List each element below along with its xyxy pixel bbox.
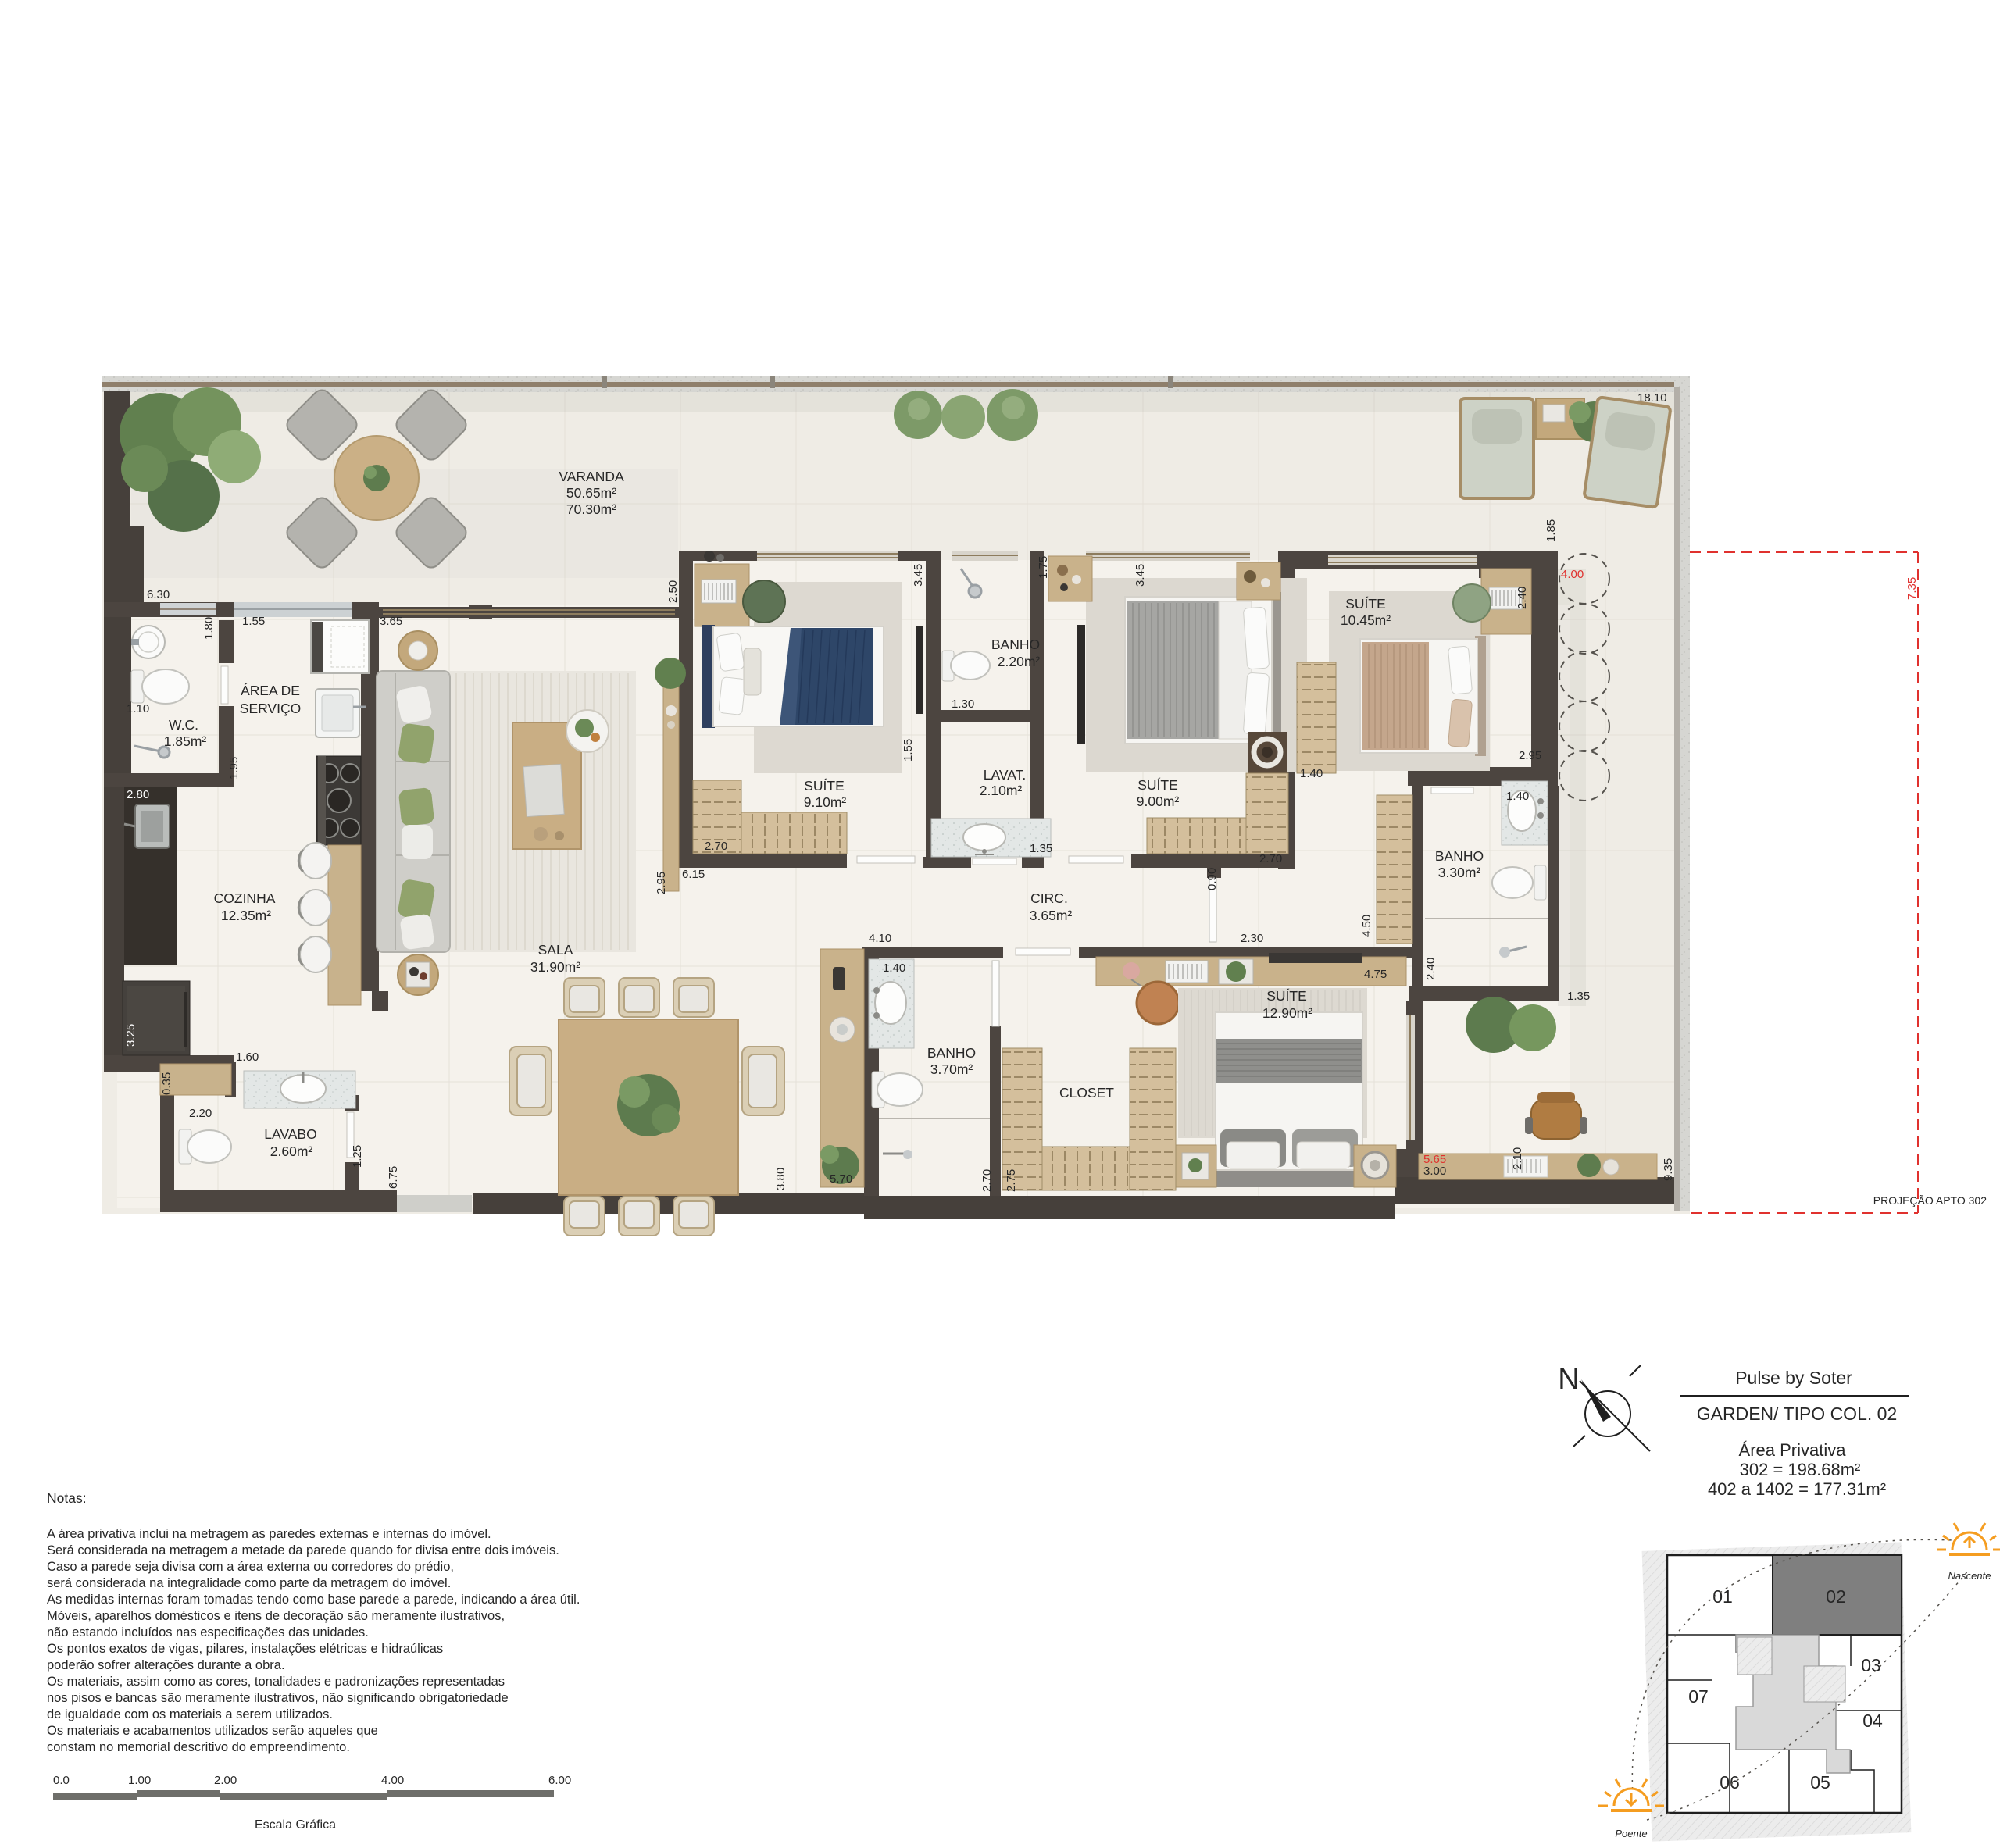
svg-text:4.00: 4.00: [381, 1774, 404, 1787]
svg-text:GARDEN/ TIPO COL. 02: GARDEN/ TIPO COL. 02: [1697, 1404, 1897, 1424]
svg-text:03: 03: [1861, 1655, 1881, 1675]
svg-text:2.80: 2.80: [127, 788, 149, 801]
svg-text:07: 07: [1688, 1686, 1709, 1707]
svg-text:0.90: 0.90: [1205, 868, 1219, 890]
svg-text:PROJEÇÃO APTO 302: PROJEÇÃO APTO 302: [1873, 1194, 1987, 1207]
svg-text:70.30m²: 70.30m²: [566, 501, 616, 517]
svg-text:2.40: 2.40: [1424, 958, 1437, 980]
svg-text:2.00: 2.00: [214, 1774, 237, 1787]
svg-text:LAVAT.: LAVAT.: [984, 767, 1026, 783]
svg-text:02: 02: [1826, 1586, 1846, 1607]
svg-text:3.45: 3.45: [912, 564, 925, 587]
svg-text:Móveis, aparelhos domésticos e: Móveis, aparelhos domésticos e itens de …: [47, 1609, 505, 1623]
svg-text:6.00: 6.00: [548, 1774, 571, 1787]
svg-text:5.65: 5.65: [1423, 1153, 1446, 1166]
svg-text:3.65: 3.65: [380, 615, 402, 628]
svg-text:de igualdade com os materiais: de igualdade com os materiais a serem ut…: [47, 1707, 333, 1721]
svg-text:Os pontos exatos de vigas, pil: Os pontos exatos de vigas, pilares, inst…: [47, 1642, 443, 1656]
svg-text:N: N: [1558, 1363, 1579, 1396]
svg-text:CLOSET: CLOSET: [1059, 1085, 1114, 1101]
svg-text:Os materiais, assim como as co: Os materiais, assim como as cores, tonal…: [47, 1675, 505, 1689]
svg-text:As medidas internas foram toma: As medidas internas foram tomadas tendo …: [47, 1593, 580, 1607]
svg-text:0.35: 0.35: [160, 1072, 173, 1095]
svg-text:nos pisos e bancas são meramen: nos pisos e bancas são meramente ilustra…: [47, 1691, 509, 1705]
svg-text:Notas:: Notas:: [47, 1490, 87, 1506]
svg-text:5.70: 5.70: [830, 1172, 852, 1186]
svg-text:1.25: 1.25: [351, 1145, 364, 1168]
svg-text:31.90m²: 31.90m²: [530, 959, 580, 975]
svg-text:COZINHA: COZINHA: [214, 890, 276, 906]
svg-text:1.75: 1.75: [1037, 556, 1050, 579]
svg-text:BANHO: BANHO: [991, 637, 1040, 652]
svg-text:1.85m²: 1.85m²: [164, 733, 207, 749]
svg-text:6.15: 6.15: [682, 868, 705, 881]
svg-text:Poente: Poente: [1615, 1828, 1647, 1839]
svg-text:2.70: 2.70: [1259, 852, 1282, 865]
svg-text:1.40: 1.40: [1506, 790, 1529, 803]
svg-text:50.65m²: 50.65m²: [566, 485, 616, 501]
svg-text:SERVIÇO: SERVIÇO: [240, 701, 301, 716]
svg-text:será considerada na integralid: será considerada na integralidade como p…: [47, 1576, 451, 1590]
svg-text:6.30: 6.30: [147, 588, 170, 601]
svg-text:2.95: 2.95: [655, 872, 668, 894]
svg-text:1.95: 1.95: [227, 757, 241, 780]
svg-text:9.35: 9.35: [1662, 1158, 1675, 1181]
svg-text:SUÍTE: SUÍTE: [804, 778, 845, 794]
svg-text:Será considerada na metragem a: Será considerada na metragem a metade da…: [47, 1543, 559, 1557]
svg-text:04: 04: [1862, 1711, 1883, 1731]
svg-text:9.10m²: 9.10m²: [804, 794, 847, 810]
svg-text:Nascente: Nascente: [1948, 1570, 1991, 1582]
svg-text:3.80: 3.80: [774, 1168, 787, 1190]
svg-text:3.65m²: 3.65m²: [1030, 908, 1073, 923]
svg-text:BANHO: BANHO: [1435, 848, 1484, 864]
svg-text:2.60m²: 2.60m²: [270, 1143, 313, 1159]
svg-text:2.95: 2.95: [1519, 749, 1541, 762]
svg-text:1.30: 1.30: [952, 697, 974, 711]
svg-text:05: 05: [1810, 1772, 1830, 1793]
svg-text:2.20: 2.20: [189, 1107, 212, 1120]
svg-text:CIRC.: CIRC.: [1030, 890, 1068, 906]
svg-text:12.35m²: 12.35m²: [221, 908, 271, 923]
svg-text:2.70: 2.70: [980, 1169, 994, 1192]
svg-text:6.75: 6.75: [387, 1166, 400, 1189]
svg-text:1.40: 1.40: [1300, 767, 1323, 780]
svg-text:2.10: 2.10: [1511, 1147, 1524, 1170]
svg-text:4.10: 4.10: [869, 932, 891, 945]
svg-text:1.55: 1.55: [902, 739, 915, 762]
svg-text:1.00: 1.00: [128, 1774, 151, 1787]
svg-text:2.75: 2.75: [1005, 1169, 1018, 1192]
svg-text:SALA: SALA: [538, 942, 573, 958]
svg-text:9.00m²: 9.00m²: [1137, 794, 1180, 809]
svg-text:1.60: 1.60: [236, 1051, 259, 1064]
svg-text:0.0: 0.0: [53, 1774, 70, 1787]
svg-text:4.50: 4.50: [1360, 915, 1373, 937]
svg-text:poderão sofrer alterações dura: poderão sofrer alterações durante a obra…: [47, 1658, 285, 1672]
svg-text:2.10m²: 2.10m²: [980, 783, 1023, 798]
svg-text:2.50: 2.50: [666, 580, 680, 603]
svg-text:1.10: 1.10: [127, 702, 149, 715]
svg-text:A área privativa inclui na met: A área privativa inclui na metragem as p…: [47, 1527, 491, 1541]
svg-text:2.70: 2.70: [705, 840, 727, 853]
svg-text:302 = 198.68m²: 302 = 198.68m²: [1740, 1460, 1861, 1479]
svg-text:1.40: 1.40: [883, 961, 905, 975]
svg-text:SUÍTE: SUÍTE: [1137, 777, 1178, 793]
svg-text:ÁREA DE: ÁREA DE: [241, 683, 300, 698]
svg-text:constam no memorial descritivo: constam no memorial descritivo do empree…: [47, 1740, 350, 1754]
svg-text:VARANDA: VARANDA: [559, 469, 624, 484]
svg-text:1.55: 1.55: [242, 615, 265, 628]
svg-text:W.C.: W.C.: [169, 717, 198, 733]
svg-text:Área Privativa: Área Privativa: [1739, 1440, 1847, 1460]
svg-text:1.35: 1.35: [1567, 990, 1590, 1003]
svg-text:4.00: 4.00: [1561, 568, 1584, 581]
svg-text:3.70m²: 3.70m²: [930, 1061, 973, 1077]
svg-text:402 a 1402 = 177.31m²: 402 a 1402 = 177.31m²: [1708, 1479, 1886, 1499]
svg-text:SUÍTE: SUÍTE: [1266, 988, 1307, 1004]
svg-text:06: 06: [1720, 1772, 1740, 1793]
svg-text:3.00: 3.00: [1423, 1165, 1446, 1178]
svg-text:Caso a parede seja divisa com: Caso a parede seja divisa com a área ext…: [47, 1560, 454, 1574]
svg-text:Os materiais e acabamentos uti: Os materiais e acabamentos utilizados se…: [47, 1724, 378, 1738]
svg-text:Escala Gráfica: Escala Gráfica: [255, 1818, 336, 1832]
svg-text:SUÍTE: SUÍTE: [1345, 596, 1386, 612]
svg-text:18.10: 18.10: [1637, 391, 1667, 405]
svg-text:10.45m²: 10.45m²: [1341, 612, 1391, 628]
svg-text:1.85: 1.85: [1545, 519, 1558, 542]
svg-text:3.30m²: 3.30m²: [1438, 865, 1481, 880]
svg-text:não estando incluídos nas espe: não estando incluídos nas especificações…: [47, 1625, 369, 1639]
svg-text:12.90m²: 12.90m²: [1262, 1005, 1312, 1021]
svg-text:3.25: 3.25: [124, 1024, 137, 1047]
svg-text:4.75: 4.75: [1364, 968, 1387, 981]
svg-text:LAVABO: LAVABO: [264, 1126, 316, 1142]
svg-text:7.35: 7.35: [1905, 577, 1919, 600]
svg-text:Pulse by Soter: Pulse by Soter: [1735, 1368, 1852, 1388]
svg-text:3.45: 3.45: [1134, 564, 1147, 587]
svg-text:2.30: 2.30: [1241, 932, 1263, 945]
svg-text:2.20m²: 2.20m²: [998, 654, 1041, 669]
svg-text:1.80: 1.80: [202, 617, 216, 640]
svg-text:2.40: 2.40: [1516, 587, 1529, 609]
svg-text:BANHO: BANHO: [927, 1045, 976, 1061]
svg-text:1.35: 1.35: [1030, 842, 1052, 855]
